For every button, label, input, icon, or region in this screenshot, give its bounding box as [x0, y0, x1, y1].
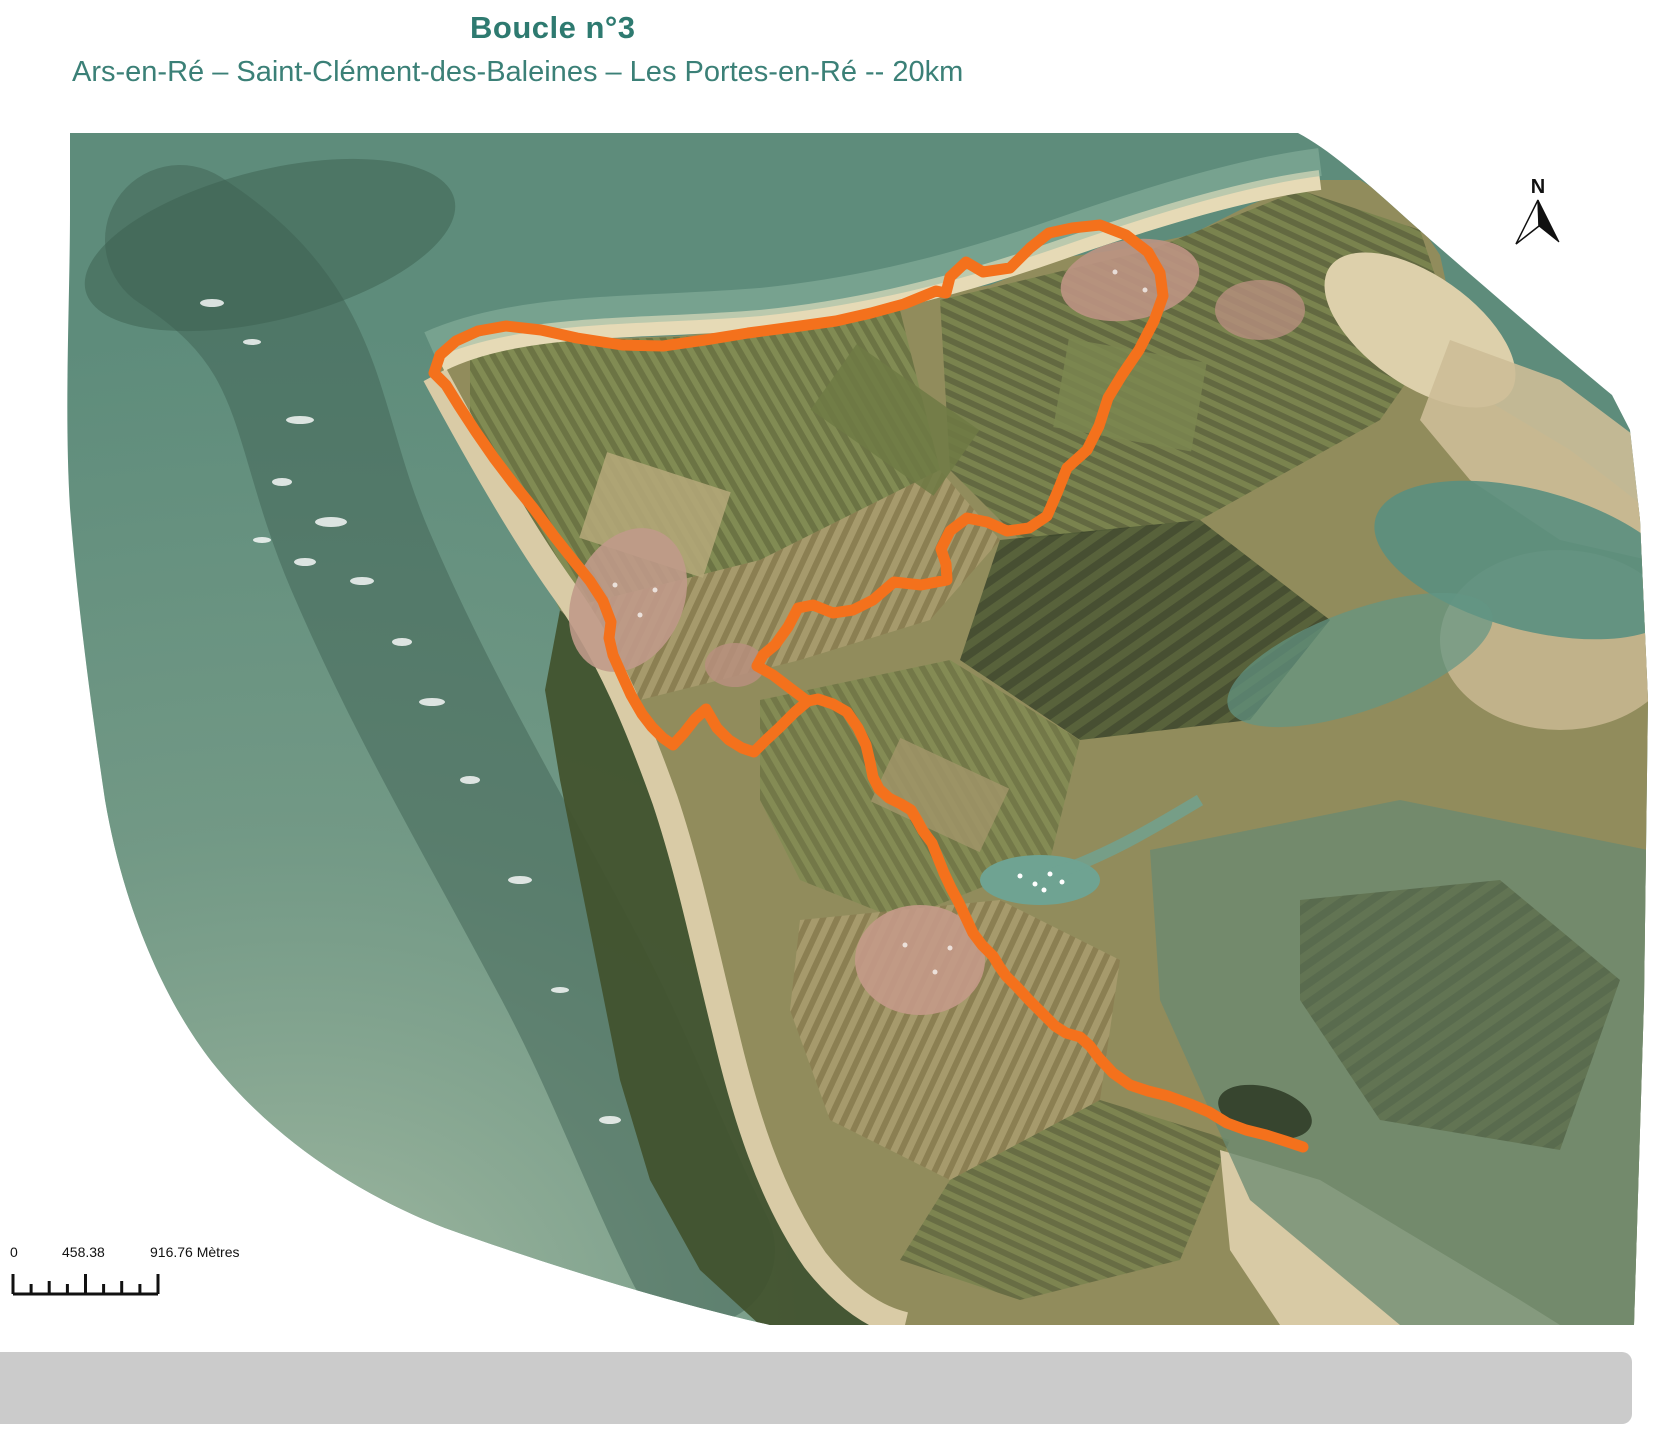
scale-label-middle: 458.38: [62, 1244, 105, 1260]
north-arrow-icon: [1505, 196, 1575, 262]
aerial-map-image: [0, 0, 1660, 1430]
scale-ruler: [8, 1268, 178, 1302]
map-page: Boucle n°3 Ars-en-Ré – Saint-Clément-des…: [0, 0, 1660, 1430]
scale-label-end: 916.76 Mètres: [150, 1244, 240, 1260]
village-cluster: [1215, 280, 1305, 340]
footer-bar: [0, 1352, 1632, 1424]
scale-label-start: 0: [10, 1244, 18, 1260]
north-arrow: N: [1505, 176, 1575, 262]
